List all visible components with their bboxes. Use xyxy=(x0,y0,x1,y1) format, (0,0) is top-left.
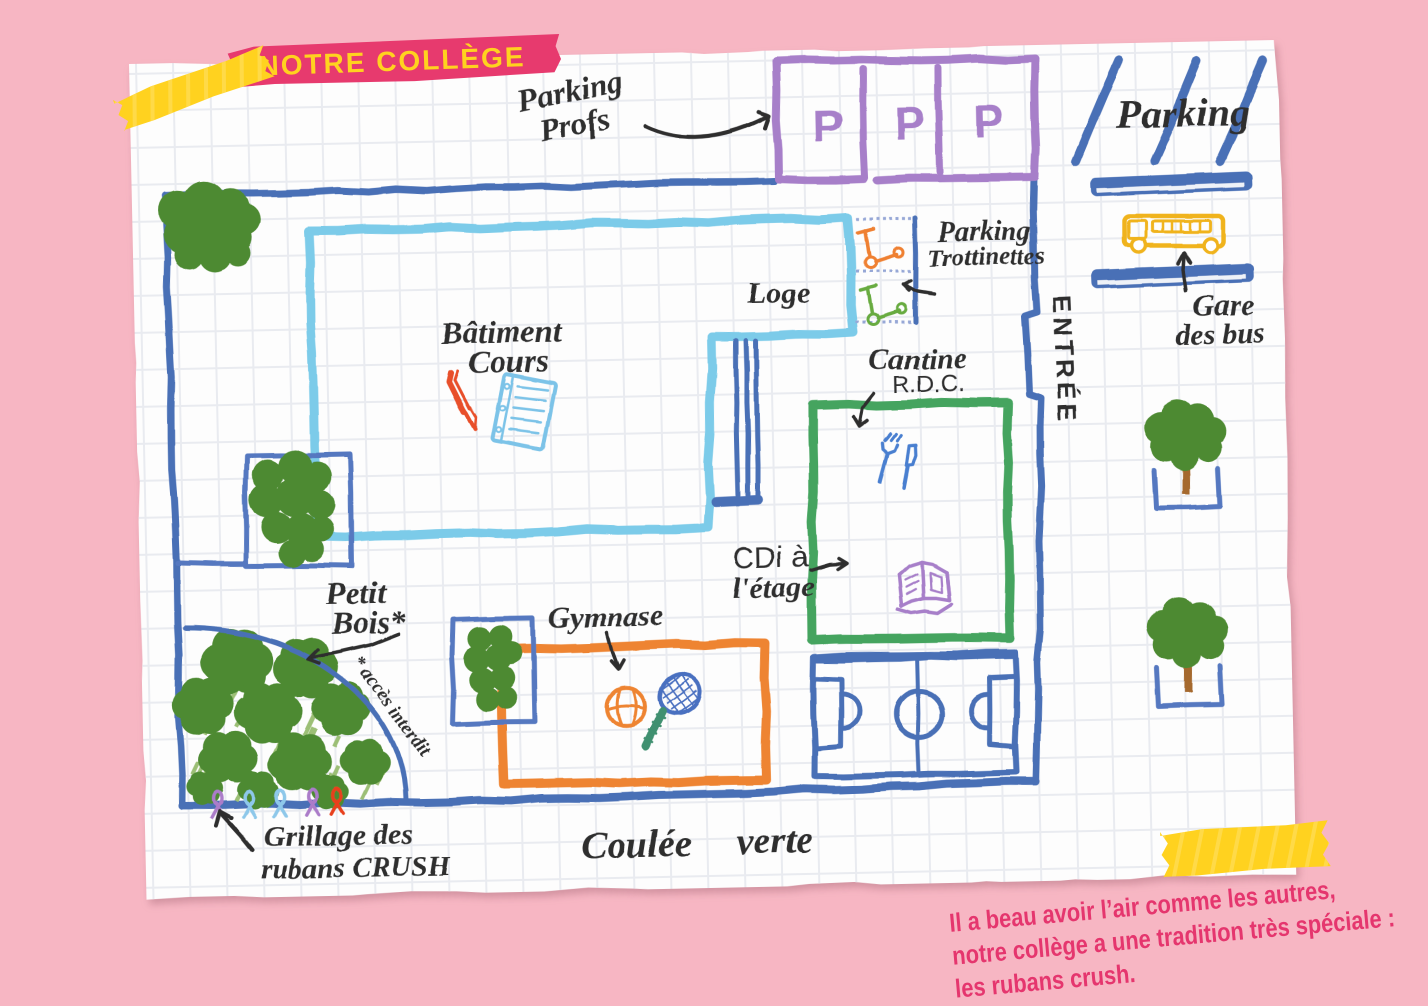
svg-text:Parking: Parking xyxy=(1115,89,1250,137)
svg-text:ENTRÉE: ENTRÉE xyxy=(1047,295,1082,426)
svg-text:R.D.C.: R.D.C. xyxy=(893,370,966,399)
svg-text:verte: verte xyxy=(736,819,813,863)
svg-text:rubans CRUSH: rubans CRUSH xyxy=(260,850,451,886)
svg-text:P: P xyxy=(894,97,926,150)
svg-text:Gymnase: Gymnase xyxy=(548,600,664,635)
svg-text:l'étage: l'étage xyxy=(732,570,814,605)
svg-text:P: P xyxy=(812,99,844,152)
svg-text:Loge: Loge xyxy=(746,276,809,310)
svg-text:Coulée: Coulée xyxy=(581,823,692,867)
svg-text:des bus: des bus xyxy=(1174,316,1266,351)
svg-text:Trottinettes: Trottinettes xyxy=(928,243,1046,272)
svg-text:P: P xyxy=(973,95,1005,148)
svg-text:Grillage des: Grillage des xyxy=(263,818,413,854)
